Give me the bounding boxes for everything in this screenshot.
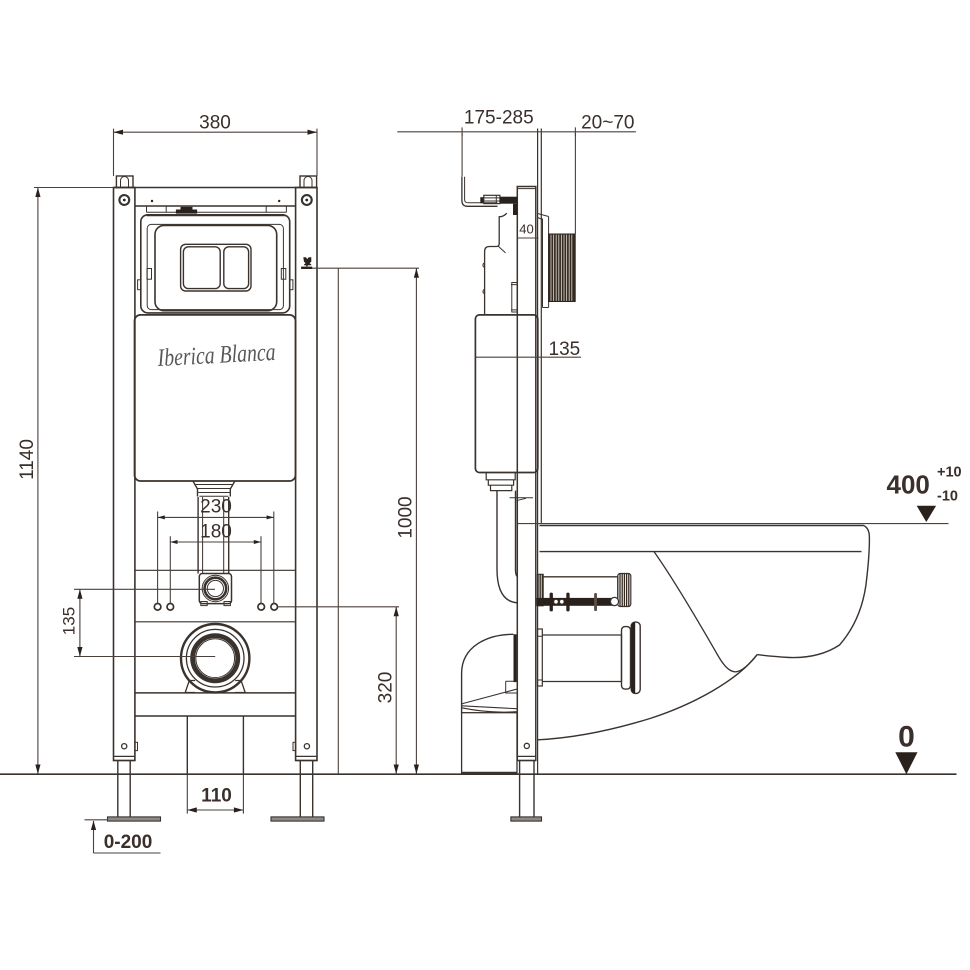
svg-text:40: 40 [519,222,533,237]
svg-text:400: 400 [887,469,930,499]
svg-text:1140: 1140 [17,439,38,480]
svg-text:175-285: 175-285 [464,108,534,129]
svg-text:+10: +10 [937,464,962,480]
svg-text:110: 110 [201,786,232,807]
svg-text:-10: -10 [937,488,958,504]
svg-text:180: 180 [200,522,232,543]
svg-text:320: 320 [376,672,397,704]
svg-text:1000: 1000 [396,496,417,538]
svg-text:0-200: 0-200 [104,832,153,853]
svg-text:135: 135 [549,339,581,360]
svg-text:20~70: 20~70 [581,113,634,134]
svg-text:135: 135 [60,607,79,635]
svg-text:380: 380 [199,113,231,134]
svg-text:230: 230 [200,497,232,518]
svg-text:0: 0 [898,720,915,753]
